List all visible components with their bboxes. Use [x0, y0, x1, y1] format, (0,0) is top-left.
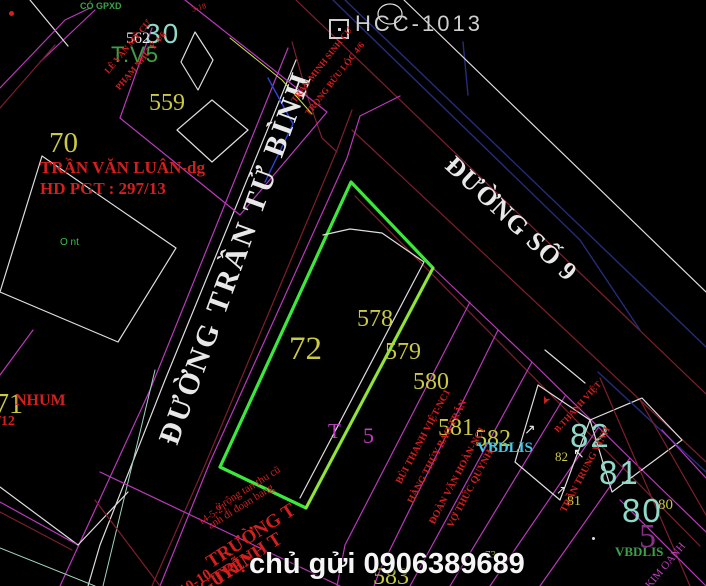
- road9-navy-line-2: [333, 0, 640, 330]
- map-code-label: HCC-1013: [355, 13, 483, 35]
- building-small-559: [181, 32, 213, 90]
- map-linework: [0, 0, 706, 586]
- parcel-label-72: 72: [289, 333, 322, 366]
- road9-navy-stub: [463, 42, 468, 95]
- cadastral-map-canvas: HCC-1013 ĐƯỜNG TRẦN TỬ BÌNH ĐƯỜNG SỐ 9 5…: [0, 0, 706, 586]
- red-point-marker: [9, 11, 14, 16]
- label-o-nt: O nt: [60, 238, 79, 248]
- owner-contract-12: /12: [0, 415, 15, 429]
- parcel-label-82-small: 82: [555, 450, 568, 463]
- parcel-label-559: 559: [149, 91, 185, 115]
- left-edge-magenta: [0, 330, 33, 375]
- cad-number-81: 81: [599, 456, 640, 489]
- bottomleft-white-corner: [0, 487, 128, 545]
- label-5: 5: [363, 425, 374, 447]
- roadttb-pale-line: [103, 370, 155, 586]
- arrow-up-right-icon-2: ↗: [556, 484, 566, 496]
- owner-contract-hd-pgt: HD PGT : 297/13: [40, 180, 166, 197]
- bottomleft-darkred-2: [95, 500, 160, 586]
- bottomleft-darkred: [0, 512, 72, 550]
- corner-magenta-1: [0, 8, 90, 88]
- label-big-5: 5: [639, 520, 656, 554]
- parcel-label-70: 70: [49, 129, 78, 158]
- watermark-phone: chủ gửi 0906389689: [249, 550, 525, 579]
- label-co-gpxd: CÓ GPXD: [80, 2, 122, 11]
- label-t: T: [328, 421, 341, 442]
- bottomleft-pale-line: [0, 548, 95, 586]
- block559-edge-2: [40, 10, 95, 62]
- corner-darkred: [0, 45, 55, 108]
- owner-name-nhum: NHUM: [15, 393, 66, 409]
- arrow-up-right-icon: ↗: [524, 424, 536, 438]
- arrow-up-left-icon: ↖: [573, 448, 585, 462]
- parcel-82-tie-line: [545, 350, 585, 383]
- parcel-label-579: 579: [385, 340, 421, 364]
- building-diamond-559: [177, 100, 248, 162]
- parcel-label-578: 578: [357, 307, 393, 331]
- owner-name-tran-van-luan: TRẦN VĂN LUÂN-dg: [40, 159, 205, 176]
- bottomright-magenta-1: [662, 430, 706, 478]
- bottomleft-magenta: [0, 502, 76, 544]
- white-point-marker: [592, 537, 595, 540]
